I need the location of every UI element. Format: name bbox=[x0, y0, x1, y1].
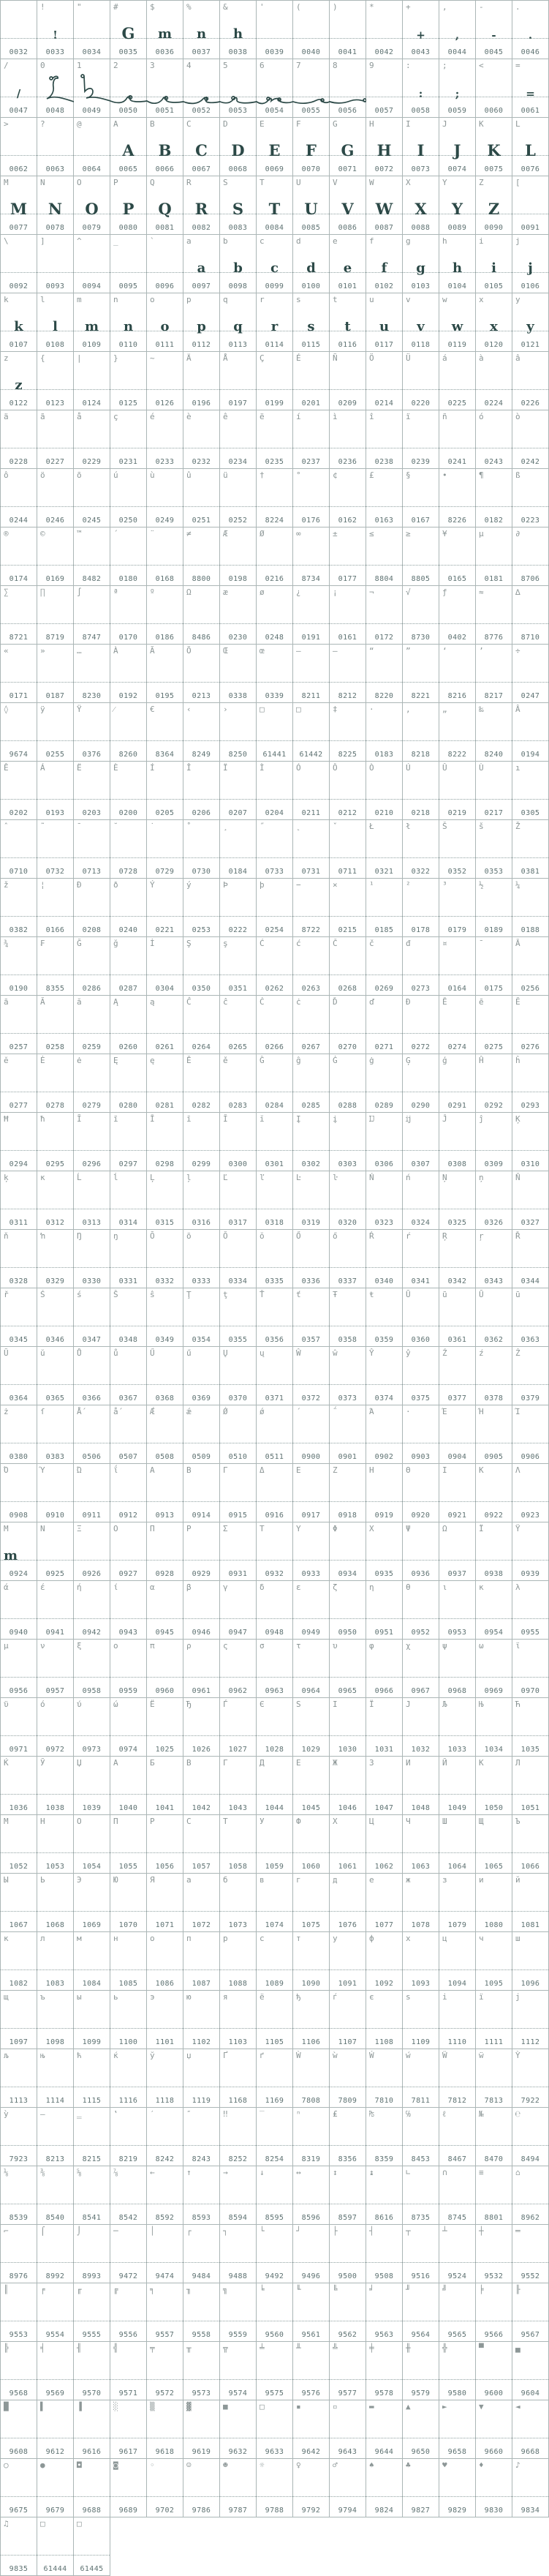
glyph-cell[interactable]: Ш1064 bbox=[439, 1815, 476, 1874]
glyph-cell[interactable]: nn0110 bbox=[110, 293, 147, 352]
glyph-cell[interactable]: Ę0280 bbox=[110, 1054, 147, 1113]
glyph-cell[interactable]: ú0250 bbox=[110, 469, 147, 527]
glyph-cell[interactable]: ≤8804 bbox=[366, 527, 403, 586]
glyph-cell[interactable]: Þ0222 bbox=[220, 879, 257, 937]
glyph-cell[interactable]: ↔8596 bbox=[293, 2166, 330, 2225]
glyph-cell[interactable]: ó0243 bbox=[476, 410, 512, 469]
glyph-cell[interactable]: aa0097 bbox=[183, 235, 220, 293]
glyph-cell[interactable]: dd0100 bbox=[293, 235, 330, 293]
glyph-cell[interactable]: ĉ0265 bbox=[220, 996, 257, 1054]
glyph-cell[interactable]: Î0206 bbox=[183, 762, 220, 820]
glyph-cell[interactable]: β0946 bbox=[183, 1581, 220, 1640]
glyph-cell[interactable]: ╫9579 bbox=[403, 2342, 439, 2400]
glyph-cell[interactable]: Щ1065 bbox=[476, 1815, 512, 1874]
glyph-cell[interactable]: ∏8719 bbox=[37, 586, 74, 645]
glyph-cell[interactable]: gg0103 bbox=[403, 235, 439, 293]
glyph-cell[interactable]: Ĵ0308 bbox=[439, 1113, 476, 1171]
glyph-cell[interactable]: EE0069 bbox=[257, 118, 293, 176]
glyph-cell[interactable]: ś0347 bbox=[74, 1288, 110, 1347]
glyph-cell[interactable]: ⅜8540 bbox=[37, 2166, 74, 2225]
glyph-cell[interactable]: ..0046 bbox=[512, 1, 549, 59]
glyph-cell[interactable]: Ď0270 bbox=[330, 996, 366, 1054]
glyph-cell[interactable]: Ņ0325 bbox=[439, 1171, 476, 1230]
glyph-cell[interactable]: Ρ0929 bbox=[183, 1522, 220, 1581]
glyph-cell[interactable]: ϊ0970 bbox=[512, 1640, 549, 1698]
glyph-cell[interactable]: Ä0196 bbox=[183, 352, 220, 410]
glyph-cell[interactable]: Ĭ0300 bbox=[220, 1113, 257, 1171]
glyph-cell[interactable]: У1059 bbox=[257, 1815, 293, 1874]
glyph-cell[interactable]: {0123 bbox=[37, 352, 74, 410]
glyph-cell[interactable]: Μm0924 bbox=[1, 1522, 37, 1581]
glyph-cell[interactable]: ẃ7811 bbox=[403, 2049, 439, 2108]
glyph-cell[interactable]: ι0953 bbox=[439, 1581, 476, 1640]
glyph-cell[interactable]: ←8592 bbox=[147, 2166, 183, 2225]
glyph-cell[interactable]: ¶0182 bbox=[476, 469, 512, 527]
glyph-cell[interactable]: Ь1068 bbox=[37, 1874, 74, 1932]
glyph-cell[interactable]: й1081 bbox=[512, 1874, 549, 1932]
glyph-cell[interactable]: П1055 bbox=[110, 1815, 147, 1874]
glyph-cell[interactable]: GG0071 bbox=[330, 118, 366, 176]
glyph-cell[interactable]: ll0108 bbox=[37, 293, 74, 352]
glyph-cell[interactable]: ¨0168 bbox=[147, 527, 183, 586]
glyph-cell[interactable]: —8212 bbox=[330, 645, 366, 703]
glyph-cell[interactable]: ŝ0349 bbox=[147, 1288, 183, 1347]
glyph-cell[interactable]: ć0263 bbox=[293, 937, 330, 996]
glyph-cell[interactable]: ė0279 bbox=[74, 1054, 110, 1113]
glyph-cell[interactable]: γ0947 bbox=[220, 1581, 257, 1640]
glyph-cell[interactable]: Ö0214 bbox=[366, 352, 403, 410]
glyph-cell[interactable]: Ő0336 bbox=[293, 1230, 330, 1288]
glyph-cell[interactable]: œ0339 bbox=[257, 645, 293, 703]
glyph-cell[interactable]: О1054 bbox=[74, 1815, 110, 1874]
glyph-cell[interactable]: č0269 bbox=[366, 937, 403, 996]
glyph-cell[interactable]: Ġ0288 bbox=[330, 1054, 366, 1113]
glyph-cell[interactable]: à0224 bbox=[476, 352, 512, 410]
glyph-cell[interactable]: jj0106 bbox=[512, 235, 549, 293]
glyph-cell[interactable]: ;;0059 bbox=[439, 59, 476, 118]
glyph-cell[interactable]: »0187 bbox=[37, 645, 74, 703]
glyph-cell[interactable]: η0951 bbox=[366, 1581, 403, 1640]
glyph-cell[interactable]: ĭ0301 bbox=[257, 1113, 293, 1171]
glyph-cell[interactable]: §0167 bbox=[403, 469, 439, 527]
glyph-cell[interactable]: Û0219 bbox=[439, 762, 476, 820]
glyph-cell[interactable]: ΐ0912 bbox=[110, 1464, 147, 1522]
glyph-cell[interactable]: ǽ0509 bbox=[183, 1405, 220, 1464]
glyph-cell[interactable]: ╖9558 bbox=[183, 2283, 220, 2342]
glyph-cell[interactable]: ¿0191 bbox=[293, 586, 330, 645]
glyph-cell[interactable]: uu0117 bbox=[366, 293, 403, 352]
glyph-cell[interactable]: ¦0166 bbox=[37, 879, 74, 937]
glyph-cell[interactable]: ¤0164 bbox=[439, 937, 476, 996]
glyph-cell[interactable]: ⌂8962 bbox=[512, 2166, 549, 2225]
glyph-cell[interactable]: л1083 bbox=[37, 1932, 74, 1991]
glyph-cell[interactable]: ▒9618 bbox=[147, 2400, 183, 2459]
glyph-cell[interactable]: Ś0346 bbox=[37, 1288, 74, 1347]
glyph-cell[interactable]: •8226 bbox=[439, 469, 476, 527]
glyph-cell[interactable]: ◊9674 bbox=[1, 703, 37, 762]
glyph-cell[interactable]: Ŋ0330 bbox=[74, 1230, 110, 1288]
glyph-cell[interactable]: ĕ0277 bbox=[1, 1054, 37, 1113]
glyph-cell[interactable]: і1110 bbox=[439, 1991, 476, 2049]
glyph-cell[interactable]: þ0254 bbox=[257, 879, 293, 937]
glyph-cell[interactable]: ∑8721 bbox=[1, 586, 37, 645]
glyph-cell[interactable]: đ0273 bbox=[403, 937, 439, 996]
glyph-cell[interactable]: З1047 bbox=[366, 1757, 403, 1815]
glyph-cell[interactable]: ■9632 bbox=[220, 2400, 257, 2459]
glyph-cell[interactable]: Ύ0910 bbox=[37, 1464, 74, 1522]
glyph-cell[interactable]: Ώ0911 bbox=[74, 1464, 110, 1522]
glyph-cell[interactable]: я1103 bbox=[220, 1991, 257, 2049]
glyph-cell[interactable]: ň0328 bbox=[1, 1230, 37, 1288]
glyph-cell[interactable]: г1075 bbox=[293, 1874, 330, 1932]
glyph-cell[interactable]: Х1061 bbox=[330, 1815, 366, 1874]
glyph-cell[interactable]: ♪9834 bbox=[512, 2459, 549, 2517]
glyph-cell[interactable]: ▓9619 bbox=[183, 2400, 220, 2459]
glyph-cell[interactable]: Χ0935 bbox=[366, 1522, 403, 1581]
glyph-cell[interactable]: в1074 bbox=[257, 1874, 293, 1932]
glyph-cell[interactable]: Ĕ0276 bbox=[512, 996, 549, 1054]
glyph-cell[interactable]: $m0036 bbox=[147, 1, 183, 59]
glyph-cell[interactable]: ķ0311 bbox=[1, 1171, 37, 1230]
glyph-cell[interactable]: Ĺ0313 bbox=[74, 1171, 110, 1230]
glyph-cell[interactable]: ф1092 bbox=[366, 1932, 403, 1991]
glyph-cell[interactable]: 40052 bbox=[183, 59, 220, 118]
glyph-cell[interactable]: ╡9569 bbox=[37, 2342, 74, 2400]
glyph-cell[interactable]: `0096 bbox=[147, 235, 183, 293]
glyph-cell[interactable]: ↕8597 bbox=[330, 2166, 366, 2225]
glyph-cell[interactable]: ‰8240 bbox=[476, 703, 512, 762]
glyph-cell[interactable]: Ю1070 bbox=[110, 1874, 147, 1932]
glyph-cell[interactable]: ₧8359 bbox=[366, 2108, 403, 2166]
glyph-cell[interactable]: ŭ0365 bbox=[37, 1347, 74, 1405]
glyph-cell[interactable]: Ω0937 bbox=[439, 1522, 476, 1581]
glyph-cell[interactable]: Ė0278 bbox=[37, 1054, 74, 1113]
glyph-cell[interactable]: ă0259 bbox=[74, 996, 110, 1054]
glyph-cell[interactable]: ź0378 bbox=[476, 1347, 512, 1405]
glyph-cell[interactable]: Ŷ0374 bbox=[366, 1347, 403, 1405]
glyph-cell[interactable]: ╨9576 bbox=[293, 2342, 330, 2400]
glyph-cell[interactable]: ε0949 bbox=[293, 1581, 330, 1640]
glyph-cell[interactable]: ½0189 bbox=[476, 879, 512, 937]
glyph-cell[interactable]: Η0919 bbox=[366, 1464, 403, 1522]
glyph-cell[interactable]: Τ0932 bbox=[257, 1522, 293, 1581]
glyph-cell[interactable]: 10049 bbox=[74, 59, 110, 118]
glyph-cell[interactable]: ╒9554 bbox=[37, 2283, 74, 2342]
glyph-cell[interactable]: 0032 bbox=[1, 1, 37, 59]
glyph-cell[interactable]: α0945 bbox=[147, 1581, 183, 1640]
glyph-cell[interactable]: }0125 bbox=[110, 352, 147, 410]
glyph-cell[interactable]: ý0253 bbox=[183, 879, 220, 937]
glyph-cell[interactable]: Ū0362 bbox=[476, 1288, 512, 1347]
glyph-cell[interactable]: ▪9642 bbox=[293, 2400, 330, 2459]
glyph-cell[interactable]: Ō0332 bbox=[147, 1230, 183, 1288]
glyph-cell[interactable]: σ0963 bbox=[257, 1640, 293, 1698]
glyph-cell[interactable]: ŧ0359 bbox=[366, 1288, 403, 1347]
glyph-cell[interactable]: NN0078 bbox=[37, 176, 74, 235]
glyph-cell[interactable]: ‗8215 bbox=[74, 2108, 110, 2166]
glyph-cell[interactable]: █9608 bbox=[1, 2400, 37, 2459]
glyph-cell[interactable]: ╓9555 bbox=[74, 2283, 110, 2342]
glyph-cell[interactable]: Ζ0918 bbox=[330, 1464, 366, 1522]
glyph-cell[interactable]: ±0177 bbox=[330, 527, 366, 586]
glyph-cell[interactable]: ј1112 bbox=[512, 1991, 549, 2049]
glyph-cell[interactable]: &h0038 bbox=[220, 1, 257, 59]
glyph-cell[interactable]: †8224 bbox=[257, 469, 293, 527]
glyph-cell[interactable]: □61441 bbox=[257, 703, 293, 762]
glyph-cell[interactable]: ύ0973 bbox=[74, 1698, 110, 1757]
glyph-cell[interactable]: ω0969 bbox=[476, 1640, 512, 1698]
glyph-cell[interactable]: 90057 bbox=[366, 59, 403, 118]
glyph-cell[interactable]: ╪9578 bbox=[366, 2342, 403, 2400]
glyph-cell[interactable]: Ŗ0342 bbox=[439, 1230, 476, 1288]
glyph-cell[interactable]: ∟8735 bbox=[403, 2166, 439, 2225]
glyph-cell[interactable]: oo0111 bbox=[147, 293, 183, 352]
glyph-cell[interactable]: Ą0260 bbox=[110, 996, 147, 1054]
glyph-cell[interactable]: ђ1106 bbox=[293, 1991, 330, 2049]
glyph-cell[interactable]: ,,0044 bbox=[439, 1, 476, 59]
glyph-cell[interactable]: cc0099 bbox=[257, 235, 293, 293]
glyph-cell[interactable]: Є1028 bbox=[257, 1698, 293, 1757]
glyph-cell[interactable]: Ñ0209 bbox=[330, 352, 366, 410]
glyph-cell[interactable]: ₣8355 bbox=[37, 937, 74, 996]
glyph-cell[interactable]: ┐9488 bbox=[220, 2225, 257, 2283]
glyph-cell[interactable]: ⅞8542 bbox=[110, 2166, 147, 2225]
glyph-cell[interactable]: ô0244 bbox=[1, 469, 37, 527]
glyph-cell[interactable]: ъ1098 bbox=[37, 1991, 74, 2049]
glyph-cell[interactable]: ♫9835 bbox=[1, 2517, 37, 2576]
glyph-cell[interactable]: Р1056 bbox=[147, 1815, 183, 1874]
glyph-cell[interactable]: Е1045 bbox=[293, 1757, 330, 1815]
glyph-cell[interactable]: с1089 bbox=[257, 1932, 293, 1991]
glyph-cell[interactable]: ·0183 bbox=[366, 703, 403, 762]
glyph-cell[interactable]: Ě0282 bbox=[183, 1054, 220, 1113]
glyph-cell[interactable]: ť0357 bbox=[293, 1288, 330, 1347]
glyph-cell[interactable]: TT0084 bbox=[257, 176, 293, 235]
glyph-cell[interactable]: ū0363 bbox=[512, 1288, 549, 1347]
glyph-cell[interactable]: Ǽ0508 bbox=[147, 1405, 183, 1464]
glyph-cell[interactable]: ·0903 bbox=[403, 1405, 439, 1464]
glyph-cell[interactable]: ľ0318 bbox=[257, 1171, 293, 1230]
glyph-cell[interactable]: ţ0355 bbox=[220, 1288, 257, 1347]
glyph-cell[interactable]: Ǻ0506 bbox=[74, 1405, 110, 1464]
glyph-cell[interactable]: ü0252 bbox=[220, 469, 257, 527]
glyph-cell[interactable]: *0042 bbox=[366, 1, 403, 59]
glyph-cell[interactable]: Δ0916 bbox=[257, 1464, 293, 1522]
glyph-cell[interactable]: ˛0731 bbox=[293, 820, 330, 879]
glyph-cell[interactable]: ╢9570 bbox=[74, 2342, 110, 2400]
glyph-cell[interactable]: ī0299 bbox=[183, 1113, 220, 1171]
glyph-cell[interactable]: ¯0175 bbox=[476, 937, 512, 996]
glyph-cell[interactable]: φ0966 bbox=[366, 1640, 403, 1698]
glyph-cell[interactable]: ˉ0713 bbox=[74, 820, 110, 879]
glyph-cell[interactable]: ♠9824 bbox=[366, 2459, 403, 2517]
glyph-cell[interactable]: ό0972 bbox=[37, 1698, 74, 1757]
glyph-cell[interactable]: ℮8494 bbox=[512, 2108, 549, 2166]
glyph-cell[interactable]: …8230 bbox=[74, 645, 110, 703]
glyph-cell[interactable]: τ0964 bbox=[293, 1640, 330, 1698]
glyph-cell[interactable]: Ĝ0284 bbox=[257, 1054, 293, 1113]
glyph-cell[interactable]: ‼8252 bbox=[220, 2108, 257, 2166]
glyph-cell[interactable]: е1077 bbox=[366, 1874, 403, 1932]
glyph-cell[interactable]: Ј1032 bbox=[403, 1698, 439, 1757]
glyph-cell[interactable]: į0303 bbox=[330, 1113, 366, 1171]
glyph-cell[interactable]: Õ0213 bbox=[183, 645, 220, 703]
glyph-cell[interactable]: ╕9557 bbox=[147, 2283, 183, 2342]
glyph-cell[interactable]: ¾0190 bbox=[1, 937, 37, 996]
glyph-cell[interactable]: Ï0207 bbox=[220, 762, 257, 820]
glyph-cell[interactable]: BB0066 bbox=[147, 118, 183, 176]
glyph-cell[interactable]: Ο0927 bbox=[110, 1522, 147, 1581]
glyph-cell[interactable]: ?0063 bbox=[37, 118, 74, 176]
glyph-cell[interactable]: Ι0921 bbox=[439, 1464, 476, 1522]
glyph-cell[interactable]: Ÿ0376 bbox=[74, 703, 110, 762]
glyph-cell[interactable]: ⅝8541 bbox=[74, 2166, 110, 2225]
glyph-cell[interactable]: Ħ0294 bbox=[1, 1113, 37, 1171]
glyph-cell[interactable]: À0192 bbox=[110, 645, 147, 703]
glyph-cell[interactable]: Ī0298 bbox=[147, 1113, 183, 1171]
glyph-cell[interactable]: ♥9829 bbox=[439, 2459, 476, 2517]
glyph-cell[interactable]: ╛9563 bbox=[366, 2283, 403, 2342]
glyph-cell[interactable]: Ó0211 bbox=[293, 762, 330, 820]
glyph-cell[interactable]: ▫9643 bbox=[330, 2400, 366, 2459]
glyph-cell[interactable]: ℓ8467 bbox=[439, 2108, 476, 2166]
glyph-cell[interactable]: Ί0906 bbox=[512, 1405, 549, 1464]
glyph-cell[interactable]: á0225 bbox=[439, 352, 476, 410]
glyph-cell[interactable]: ρ0961 bbox=[183, 1640, 220, 1698]
glyph-cell[interactable]: ѕ1109 bbox=[403, 1991, 439, 2049]
glyph-cell[interactable]: ’8217 bbox=[476, 645, 512, 703]
glyph-cell[interactable]: è0232 bbox=[183, 410, 220, 469]
glyph-cell[interactable]: ы1099 bbox=[74, 1991, 110, 2049]
glyph-cell[interactable]: ∆8710 bbox=[512, 586, 549, 645]
glyph-cell[interactable]: Ù0217 bbox=[476, 762, 512, 820]
glyph-cell[interactable]: –8211 bbox=[293, 645, 330, 703]
glyph-cell[interactable]: ϋ0971 bbox=[1, 1698, 37, 1757]
glyph-cell[interactable]: é0233 bbox=[147, 410, 183, 469]
glyph-cell[interactable]: ĺ0314 bbox=[110, 1171, 147, 1230]
glyph-cell[interactable]: ŵ0373 bbox=[330, 1347, 366, 1405]
glyph-cell[interactable]: Ũ0360 bbox=[403, 1288, 439, 1347]
glyph-cell[interactable]: Ń0323 bbox=[366, 1171, 403, 1230]
glyph-cell[interactable]: ―8213 bbox=[37, 2108, 74, 2166]
glyph-cell[interactable]: ÿ0255 bbox=[37, 703, 74, 762]
glyph-cell[interactable]: ń0324 bbox=[403, 1171, 439, 1230]
glyph-cell[interactable]: ∫8747 bbox=[74, 586, 110, 645]
glyph-cell[interactable]: √8730 bbox=[403, 586, 439, 645]
glyph-cell[interactable]: ‹8249 bbox=[183, 703, 220, 762]
glyph-cell[interactable]: п1087 bbox=[183, 1932, 220, 1991]
glyph-cell[interactable]: ╥9573 bbox=[183, 2342, 220, 2400]
glyph-cell[interactable]: Ά0902 bbox=[366, 1405, 403, 1464]
glyph-cell[interactable]: Т1058 bbox=[220, 1815, 257, 1874]
glyph-cell[interactable]: ĸ0312 bbox=[37, 1171, 74, 1230]
glyph-cell[interactable]: VV0086 bbox=[330, 176, 366, 235]
glyph-cell[interactable]: └9492 bbox=[257, 2225, 293, 2283]
glyph-cell[interactable]: ħ0295 bbox=[37, 1113, 74, 1171]
glyph-cell[interactable]: Å0197 bbox=[220, 352, 257, 410]
glyph-cell[interactable]: Ų0370 bbox=[220, 1347, 257, 1405]
glyph-cell[interactable]: ╦9574 bbox=[220, 2342, 257, 2400]
glyph-cell[interactable]: €8364 bbox=[147, 703, 183, 762]
glyph-cell[interactable]: Â0194 bbox=[512, 703, 549, 762]
glyph-cell[interactable]: ▌9612 bbox=[37, 2400, 74, 2459]
glyph-cell[interactable]: Ģ0290 bbox=[403, 1054, 439, 1113]
glyph-cell[interactable]: џ1119 bbox=[183, 2049, 220, 2108]
glyph-cell[interactable]: ď0271 bbox=[366, 996, 403, 1054]
glyph-cell[interactable]: OO0079 bbox=[74, 176, 110, 235]
glyph-cell[interactable]: --0045 bbox=[476, 1, 512, 59]
glyph-cell[interactable]: 80056 bbox=[330, 59, 366, 118]
glyph-cell[interactable]: ◙9689 bbox=[110, 2459, 147, 2517]
glyph-cell[interactable]: Ů0366 bbox=[74, 1347, 110, 1405]
glyph-cell[interactable]: ≥8805 bbox=[403, 527, 439, 586]
glyph-cell[interactable]: р1088 bbox=[220, 1932, 257, 1991]
glyph-cell[interactable]: ƒ0402 bbox=[439, 586, 476, 645]
glyph-cell[interactable]: Ŏ0334 bbox=[220, 1230, 257, 1288]
glyph-cell[interactable]: Θ0920 bbox=[403, 1464, 439, 1522]
glyph-cell[interactable]: ╙9561 bbox=[293, 2283, 330, 2342]
glyph-cell[interactable]: Á0193 bbox=[37, 762, 74, 820]
glyph-cell[interactable]: //0047 bbox=[1, 59, 37, 118]
glyph-cell[interactable]: Φ0934 bbox=[330, 1522, 366, 1581]
glyph-cell[interactable]: │9474 bbox=[147, 2225, 183, 2283]
glyph-cell[interactable]: ┼9532 bbox=[476, 2225, 512, 2283]
glyph-cell[interactable]: Β0914 bbox=[183, 1464, 220, 1522]
glyph-cell[interactable]: є1108 bbox=[366, 1991, 403, 2049]
glyph-cell[interactable]: ч1095 bbox=[476, 1932, 512, 1991]
glyph-cell[interactable]: ²0178 bbox=[403, 879, 439, 937]
glyph-cell[interactable]: yy0121 bbox=[512, 293, 549, 352]
glyph-cell[interactable]: ii0105 bbox=[476, 235, 512, 293]
glyph-cell[interactable]: ®0174 bbox=[1, 527, 37, 586]
glyph-cell[interactable]: щ1097 bbox=[1, 1991, 37, 2049]
glyph-cell[interactable]: Į0302 bbox=[293, 1113, 330, 1171]
glyph-cell[interactable]: С1057 bbox=[183, 1815, 220, 1874]
glyph-cell[interactable]: ╩9577 bbox=[330, 2342, 366, 2400]
glyph-cell[interactable]: ˝0733 bbox=[257, 820, 293, 879]
glyph-cell[interactable]: □61442 bbox=[293, 703, 330, 762]
glyph-cell[interactable]: Ŧ0358 bbox=[330, 1288, 366, 1347]
glyph-cell[interactable]: Ú0218 bbox=[403, 762, 439, 820]
glyph-cell[interactable]: ě0283 bbox=[220, 1054, 257, 1113]
glyph-cell[interactable]: Ќ1036 bbox=[1, 1757, 37, 1815]
glyph-cell[interactable]: µ0181 bbox=[476, 527, 512, 586]
glyph-cell[interactable]: Џ1039 bbox=[74, 1757, 110, 1815]
glyph-cell[interactable]: Ü0220 bbox=[403, 352, 439, 410]
glyph-cell[interactable]: _0095 bbox=[110, 235, 147, 293]
glyph-cell[interactable]: LL0076 bbox=[512, 118, 549, 176]
glyph-cell[interactable]: ї1111 bbox=[476, 1991, 512, 2049]
glyph-cell[interactable]: ff0102 bbox=[366, 235, 403, 293]
glyph-cell[interactable]: ỳ7923 bbox=[1, 2108, 37, 2166]
glyph-cell[interactable]: Ë0203 bbox=[74, 762, 110, 820]
glyph-cell[interactable]: ћ1115 bbox=[74, 2049, 110, 2108]
glyph-cell[interactable]: з1079 bbox=[439, 1874, 476, 1932]
glyph-cell[interactable]: □9633 bbox=[257, 2400, 293, 2459]
glyph-cell[interactable]: ╘9560 bbox=[257, 2283, 293, 2342]
glyph-cell[interactable]: ŕ0341 bbox=[403, 1230, 439, 1288]
glyph-cell[interactable]: І1030 bbox=[330, 1698, 366, 1757]
glyph-cell[interactable]: ==0061 bbox=[512, 59, 549, 118]
glyph-cell[interactable]: kk0107 bbox=[1, 293, 37, 352]
glyph-cell[interactable]: ã0227 bbox=[37, 410, 74, 469]
glyph-cell[interactable]: Ẁ7808 bbox=[293, 2049, 330, 2108]
glyph-cell[interactable]: Л1051 bbox=[512, 1757, 549, 1815]
glyph-cell[interactable]: „8222 bbox=[439, 703, 476, 762]
glyph-cell[interactable]: Н1053 bbox=[37, 1815, 74, 1874]
glyph-cell[interactable]: ]0093 bbox=[37, 235, 74, 293]
glyph-cell[interactable]: Ѓ1027 bbox=[220, 1698, 257, 1757]
